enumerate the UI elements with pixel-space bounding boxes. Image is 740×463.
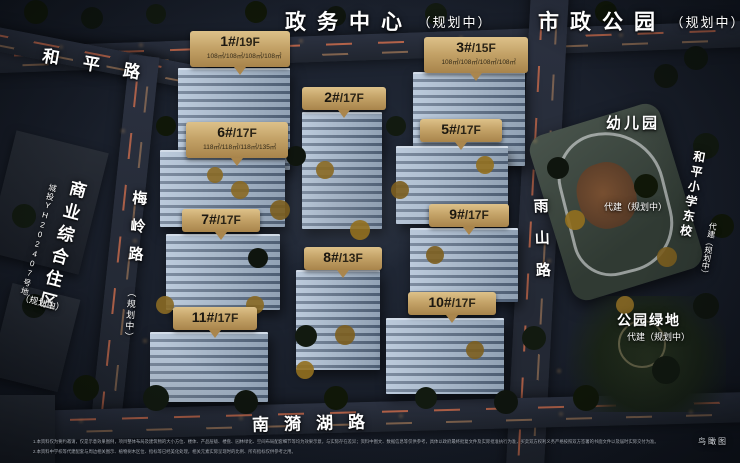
building-floor: /17F: [465, 208, 489, 222]
tag-line: 1#/19F: [194, 33, 286, 51]
tag-line: 6#/17F: [190, 124, 284, 142]
building-floor: /17F: [457, 123, 481, 137]
municipal-park-label: 市政公园 （规划中）: [538, 6, 740, 36]
disclaimer-line-1: 1.本资料仅为要约邀请，仅是示意效果图例，项目整体布局及建筑物的大小方位、楼体、…: [33, 438, 659, 444]
building-floor: /17F: [452, 296, 476, 310]
building-tag-10: 10#/17F: [408, 292, 496, 315]
building-tag-3: 3#/15F 108㎡/108㎡/108㎡/108㎡: [424, 37, 528, 73]
building-floor: /15F: [472, 41, 496, 55]
tag-line: 10#/17F: [412, 294, 492, 312]
tag-line: 2#/17F: [306, 89, 382, 107]
tag-line: 11#/17F: [177, 309, 253, 327]
tag-line: 5#/17F: [424, 121, 498, 139]
building-tag-11: 11#/17F: [173, 307, 257, 330]
building-floor: /17F: [214, 311, 238, 325]
building-tag-8: 8#/13F: [304, 247, 382, 270]
building-tag-2: 2#/17F: [302, 87, 386, 110]
building-areas: 118㎡/118㎡/118㎡/135㎡: [203, 142, 271, 151]
meiling-road-label: 梅岭路: [123, 189, 150, 274]
building-num: 7#: [201, 211, 217, 227]
building-floor: /19F: [236, 35, 260, 49]
gov-center-label: 政务中心 （规划中）: [285, 6, 492, 36]
meiling-road-status: （规划中）: [122, 288, 139, 344]
building-areas: 108㎡/108㎡/108㎡/108㎡: [207, 51, 273, 60]
yushan-road-label: 雨山路: [529, 198, 553, 295]
building-num: 3#: [456, 39, 472, 55]
tag-line: 3#/15F: [428, 39, 524, 57]
building-floor: /17F: [217, 213, 241, 227]
gov-center-title: 政务中心: [285, 11, 413, 34]
building-num: 5#: [441, 121, 457, 137]
municipal-park-status: （规划中）: [670, 15, 740, 30]
aerial-view-caption: 鸟瞰图: [698, 436, 728, 447]
park-green-label: 公园绿地: [617, 310, 681, 330]
building-num: 9#: [449, 206, 465, 222]
building-tag-6: 6#/17F 118㎡/118㎡/118㎡/135㎡: [186, 122, 288, 158]
building-tag-1: 1#/19F 108㎡/108㎡/108㎡/108㎡: [190, 31, 290, 67]
kindergarten-note: 代建（规划中）: [604, 200, 667, 213]
nanyihu-road-label: 南漪湖路: [252, 407, 381, 435]
building-8: [296, 270, 380, 370]
aerial-masterplan-render: 政务中心 （规划中） 市政公园 （规划中） 和平路 梅岭路 （规划中） 雨山路 …: [0, 0, 740, 463]
building-num: 11#: [192, 309, 215, 325]
tag-line: 9#/17F: [433, 206, 505, 224]
street-lights: [0, 0, 2, 2]
tag-line: 7#/17F: [186, 211, 256, 229]
building-floor: /13F: [339, 251, 363, 265]
building-num: 6#: [217, 124, 233, 140]
building-10: [386, 318, 504, 394]
building-num: 2#: [324, 89, 340, 105]
building-num: 1#: [220, 33, 236, 49]
building-num: 8#: [323, 249, 339, 265]
building-tag-9: 9#/17F: [429, 204, 509, 227]
building-num: 10#: [428, 294, 451, 310]
kindergarten-label: 幼儿园: [606, 112, 660, 133]
building-tag-7: 7#/17F: [182, 209, 260, 232]
park-green-note: 代建（规划中）: [627, 330, 690, 343]
building-areas: 108㎡/108㎡/108㎡/108㎡: [441, 57, 510, 66]
municipal-park-title: 市政公园: [538, 11, 666, 34]
gov-center-status: （规划中）: [417, 15, 492, 30]
building-floor: /17F: [233, 126, 257, 140]
building-11: [150, 332, 268, 402]
disclaimer-line-2: 2.本资料中学校等代建配套与周边相关图示、植物树木区位、指标等已经美化处理，相关…: [33, 448, 296, 454]
building-tag-5: 5#/17F: [420, 119, 502, 142]
tag-line: 8#/13F: [308, 249, 378, 267]
building-floor: /17F: [340, 91, 364, 105]
